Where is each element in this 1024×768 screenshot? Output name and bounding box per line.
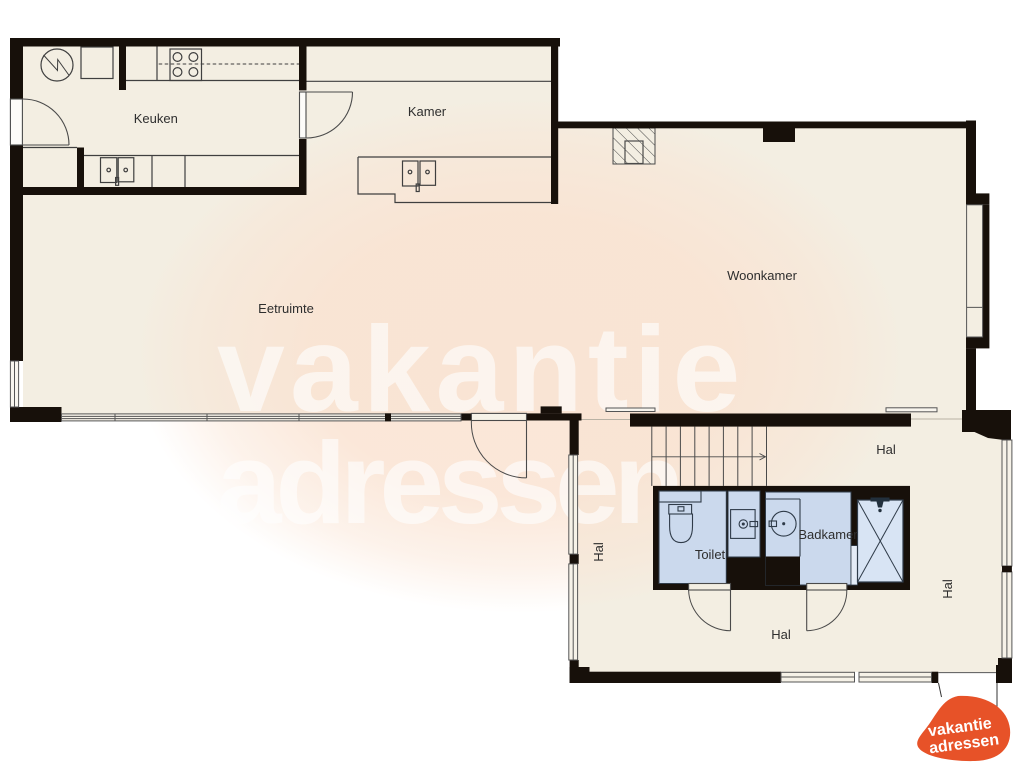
svg-text:Toilet: Toilet (695, 547, 726, 562)
svg-text:Woonkamer: Woonkamer (727, 268, 798, 283)
svg-text:Hal: Hal (591, 542, 606, 562)
svg-text:Hal: Hal (876, 442, 896, 457)
svg-text:Hal: Hal (940, 579, 955, 599)
svg-text:adressen: adressen (217, 418, 678, 548)
svg-text:Keuken: Keuken (134, 111, 178, 126)
svg-text:Eetruimte: Eetruimte (258, 301, 314, 316)
svg-text:Hal: Hal (771, 627, 791, 642)
svg-text:Kamer: Kamer (408, 104, 447, 119)
svg-text:Badkamer: Badkamer (798, 527, 858, 542)
